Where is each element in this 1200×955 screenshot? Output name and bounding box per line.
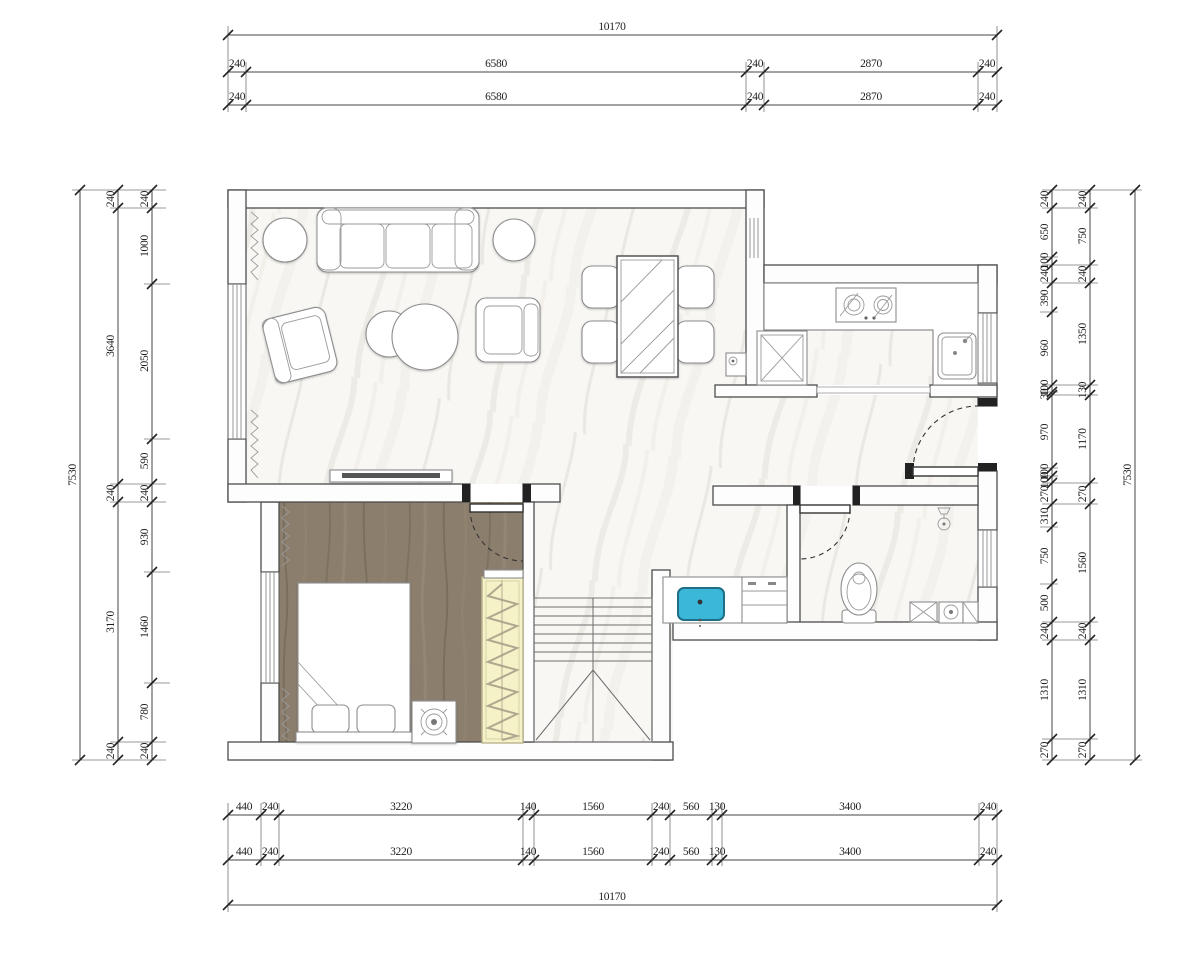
- wall-east-1: [978, 265, 997, 313]
- dim-label: 7530: [67, 464, 79, 486]
- dim-label: 240: [653, 801, 670, 813]
- dim-label: 240: [139, 190, 151, 207]
- dim-label: 270: [1039, 741, 1051, 758]
- dim-label: 240: [979, 91, 996, 103]
- dim-label: 240: [1077, 622, 1089, 639]
- dim-label: 3170: [105, 611, 117, 633]
- fridge: [757, 331, 807, 385]
- wall-kitchen-south-west: [715, 385, 817, 397]
- dim-label: 130: [709, 801, 726, 813]
- dim-strip-right: 240 650 100 240 390 960 100 30 970 100 1…: [1039, 185, 1142, 765]
- pass-through-counter: [817, 387, 930, 393]
- dim-label: 240: [1077, 265, 1089, 282]
- dim-label: 30: [1039, 388, 1051, 399]
- dim-label: 240: [747, 58, 764, 70]
- pillow: [312, 705, 349, 733]
- nightstand: [412, 701, 456, 743]
- dim-label: 6580: [485, 58, 507, 70]
- dim-label: 310: [1039, 507, 1051, 524]
- dim-label: 240: [979, 58, 996, 70]
- dining-chair: [582, 266, 620, 308]
- dining-chair: [676, 321, 714, 363]
- wall-bath-north-east: [853, 486, 978, 505]
- side-table-left: [263, 218, 307, 262]
- floor-drain: [910, 602, 937, 622]
- dim-label: 500: [1039, 594, 1051, 611]
- dim-strip-left: 7530 240 3640 240 3170 240 240 1000 2050…: [67, 185, 170, 765]
- dim-label: 240: [980, 846, 997, 858]
- dim-label: 240: [139, 742, 151, 759]
- dim-label: 1310: [1039, 679, 1051, 701]
- dining-chair: [582, 321, 620, 363]
- wardrobe-top-rail: [484, 570, 523, 578]
- dim-label: 960: [1039, 339, 1051, 356]
- dim-label: 240: [105, 742, 117, 759]
- dim-label: 390: [1039, 289, 1051, 306]
- dim-label: 140: [520, 846, 537, 858]
- dim-label: 1560: [582, 846, 604, 858]
- dim-label: 10170: [598, 891, 626, 903]
- dim-label: 440: [236, 801, 253, 813]
- stove: [836, 288, 896, 322]
- dim-label: 240: [1039, 622, 1051, 639]
- dim-label: 130: [1077, 381, 1089, 398]
- dim-label: 930: [139, 528, 151, 545]
- dim-label: 3220: [390, 801, 412, 813]
- dim-label: 440: [236, 846, 253, 858]
- dim-label: 1560: [1077, 552, 1089, 574]
- dim-label: 240: [653, 846, 670, 858]
- dim-label: 240: [747, 91, 764, 103]
- dim-label: 1350: [1077, 323, 1089, 345]
- dim-label: 100: [1039, 471, 1051, 488]
- dim-label: 650: [1039, 223, 1051, 240]
- dim-label: 1000: [139, 235, 151, 257]
- vanity: [663, 577, 787, 627]
- armchair-right: [476, 298, 540, 362]
- dim-label: 7530: [1122, 464, 1134, 486]
- dim-label: 10170: [598, 21, 626, 33]
- dim-label: 240: [1039, 190, 1051, 207]
- wall-south: [228, 742, 673, 760]
- dim-label: 970: [1039, 423, 1051, 440]
- wall-bath-north-west: [713, 486, 800, 505]
- wall-bath-south: [673, 622, 997, 640]
- washing-machine: [939, 602, 963, 623]
- dim-label: 2870: [860, 58, 882, 70]
- wall-west-upper: [228, 190, 246, 284]
- dim-label: 560: [683, 846, 700, 858]
- wall-east-3: [978, 471, 997, 530]
- dim-label: 240: [1077, 190, 1089, 207]
- dim-strip-top: 10170 240 6580 240 2870 240 240 6580 240…: [223, 21, 1002, 112]
- dim-label: 3220: [390, 846, 412, 858]
- dim-label: 590: [139, 452, 151, 469]
- bed: [296, 583, 412, 742]
- dim-label: 1170: [1077, 428, 1089, 450]
- dim-label: 140: [520, 801, 537, 813]
- wall-bedroom-west-upper: [261, 502, 279, 572]
- wall-kitchen-south-east: [930, 385, 997, 397]
- dim-label: 2870: [860, 91, 882, 103]
- wall-toilet-partition: [787, 505, 800, 623]
- dim-label: 2050: [139, 350, 151, 372]
- dim-label: 240: [262, 801, 279, 813]
- wall-kitchen-north: [764, 265, 997, 283]
- bedroom-window: [261, 572, 279, 683]
- wall-north: [228, 190, 764, 208]
- floor-plan-sheet: 10170 240 6580 240 2870 240 240 6580 240…: [0, 0, 1200, 955]
- faucet-icon: [698, 600, 703, 605]
- dim-label: 3400: [839, 846, 861, 858]
- pillow: [357, 705, 395, 733]
- dim-label: 270: [1039, 485, 1051, 502]
- wall-bedroom-stair-partition: [523, 502, 534, 742]
- dim-label: 750: [1039, 547, 1051, 564]
- control-box: [726, 353, 746, 376]
- dim-label: 240: [105, 484, 117, 501]
- wall-bedroom-west-lower: [261, 683, 279, 742]
- corner-shelf: [963, 602, 978, 623]
- dim-label: 130: [709, 846, 726, 858]
- kitchen-window: [978, 313, 997, 383]
- dim-label: 1460: [139, 616, 151, 638]
- floor-plan-drawing: 10170 240 6580 240 2870 240 240 6580 240…: [0, 0, 1200, 955]
- dim-label: 270: [1077, 485, 1089, 502]
- dim-label: 240: [229, 58, 246, 70]
- headboard: [296, 732, 412, 742]
- dim-label: 240: [1039, 265, 1051, 282]
- dim-label: 270: [1077, 741, 1089, 758]
- coffee-table-large: [392, 304, 458, 370]
- dim-label: 240: [105, 190, 117, 207]
- dim-strip-bottom: 440 240 3220 140 1560 240 560 130 3400 2…: [223, 801, 1002, 912]
- wall-living-bedroom: [228, 484, 470, 502]
- dim-label: 750: [1077, 227, 1089, 244]
- wardrobe: [482, 570, 523, 743]
- dim-label: 240: [229, 91, 246, 103]
- dim-label: 240: [262, 846, 279, 858]
- sofa: [317, 208, 479, 272]
- vanity-cabinet: [742, 577, 787, 623]
- toilet: [841, 563, 877, 623]
- bathroom-window: [978, 530, 997, 587]
- dim-label: 3400: [839, 801, 861, 813]
- tv: [342, 473, 440, 478]
- side-table-right: [493, 219, 535, 261]
- dim-label: 1560: [582, 801, 604, 813]
- dim-label: 780: [139, 703, 151, 720]
- dim-label: 1310: [1077, 679, 1089, 701]
- dim-label: 240: [980, 801, 997, 813]
- dim-label: 240: [139, 484, 151, 501]
- dim-label: 560: [683, 801, 700, 813]
- dim-label: 6580: [485, 91, 507, 103]
- living-window: [228, 284, 246, 439]
- dining-table: [617, 256, 678, 377]
- kitchen-sink: [938, 333, 976, 379]
- tv-console: [330, 470, 452, 482]
- dining-chair: [676, 266, 714, 308]
- dim-label: 3640: [105, 335, 117, 357]
